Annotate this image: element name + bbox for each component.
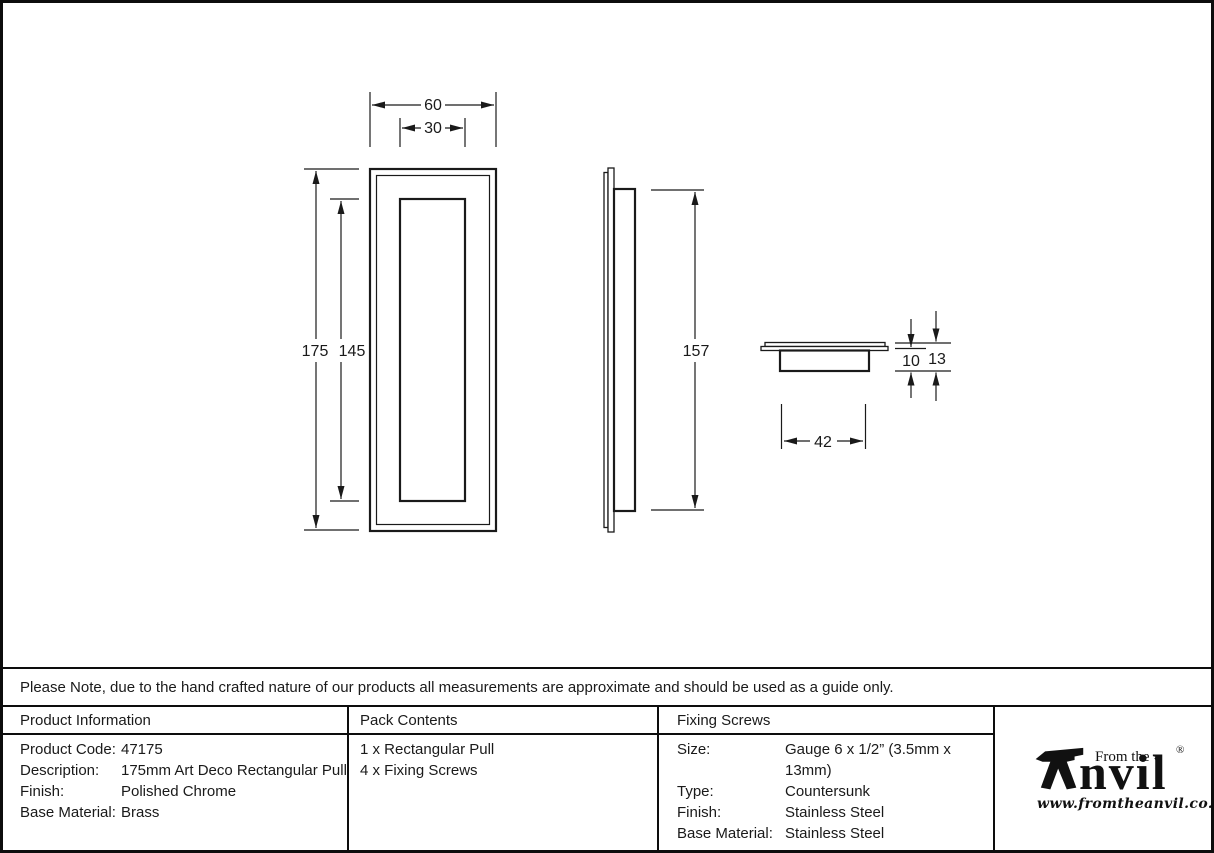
table-row: Type: Countersunk: [677, 781, 993, 802]
technical-drawing: 60 30 175 145 157: [3, 3, 1211, 665]
note-row: Please Note, due to the hand crafted nat…: [3, 667, 1211, 707]
pack-contents-header: Pack Contents: [349, 707, 657, 735]
pack-item: 1 x Rectangular Pull: [360, 739, 657, 760]
table-row: Description: 175mm Art Deco Rectangular …: [20, 760, 347, 781]
row-value: 47175: [121, 739, 163, 760]
row-label: Finish:: [677, 802, 785, 823]
anvil-icon: [1033, 747, 1085, 792]
from-the-anvil-logo: From the ♦ nvil ® www.fromtheanvil.co.uk: [995, 707, 1211, 850]
logo-brand-text: nvil: [1079, 747, 1168, 797]
spec-sheet: 60 30 175 145 157: [0, 0, 1214, 853]
dim-front-width: 60: [424, 97, 442, 114]
pack-item: 4 x Fixing Screws: [360, 760, 657, 781]
row-label: Base Material:: [20, 802, 121, 823]
dim-cup-depth: 10: [902, 353, 920, 370]
row-value: Stainless Steel: [785, 823, 884, 844]
info-table: Product Information Product Code: 47175 …: [3, 707, 1211, 850]
row-value: 175mm Art Deco Rectangular Pull: [121, 760, 347, 781]
row-value: Brass: [121, 802, 159, 823]
row-label: Product Code:: [20, 739, 121, 760]
logo-cell: From the ♦ nvil ® www.fromtheanvil.co.uk: [993, 707, 1211, 850]
table-row: Finish: Stainless Steel: [677, 802, 993, 823]
row-label: Finish:: [20, 781, 121, 802]
plan-view: [761, 311, 951, 449]
row-label: Base Material:: [677, 823, 785, 844]
dim-front-height: 175: [302, 343, 329, 360]
row-value: Polished Chrome: [121, 781, 236, 802]
logo-website: www.fromtheanvil.co.uk: [1037, 796, 1214, 812]
fixing-screws-header: Fixing Screws: [659, 707, 993, 735]
table-row: Base Material: Stainless Steel: [677, 823, 993, 844]
dim-recess-height: 145: [339, 343, 366, 360]
table-row: Product Code: 47175: [20, 739, 347, 760]
note-text: Please Note, due to the hand crafted nat…: [20, 679, 894, 696]
row-value: Stainless Steel: [785, 802, 884, 823]
pack-contents-section: Pack Contents 1 x Rectangular Pull 4 x F…: [347, 707, 657, 850]
row-value: Gauge 6 x 1/2” (3.5mm x 13mm): [785, 739, 993, 781]
row-label: Size:: [677, 739, 785, 781]
dim-side-height: 157: [683, 343, 710, 360]
table-row: Finish: Polished Chrome: [20, 781, 347, 802]
dim-cup-width: 42: [814, 434, 832, 451]
row-value: Countersunk: [785, 781, 870, 802]
registered-trademark-icon: ®: [1176, 744, 1184, 756]
row-label: Type:: [677, 781, 785, 802]
front-view: [304, 92, 496, 531]
table-row: Base Material: Brass: [20, 802, 347, 823]
table-row: Size: Gauge 6 x 1/2” (3.5mm x 13mm): [677, 739, 993, 781]
dim-total-depth: 13: [928, 351, 946, 368]
product-information-section: Product Information Product Code: 47175 …: [3, 707, 347, 850]
fixing-screws-section: Fixing Screws Size: Gauge 6 x 1/2” (3.5m…: [657, 707, 993, 850]
product-information-header: Product Information: [3, 707, 347, 735]
row-label: Description:: [20, 760, 121, 781]
dim-recess-width: 30: [424, 120, 442, 137]
